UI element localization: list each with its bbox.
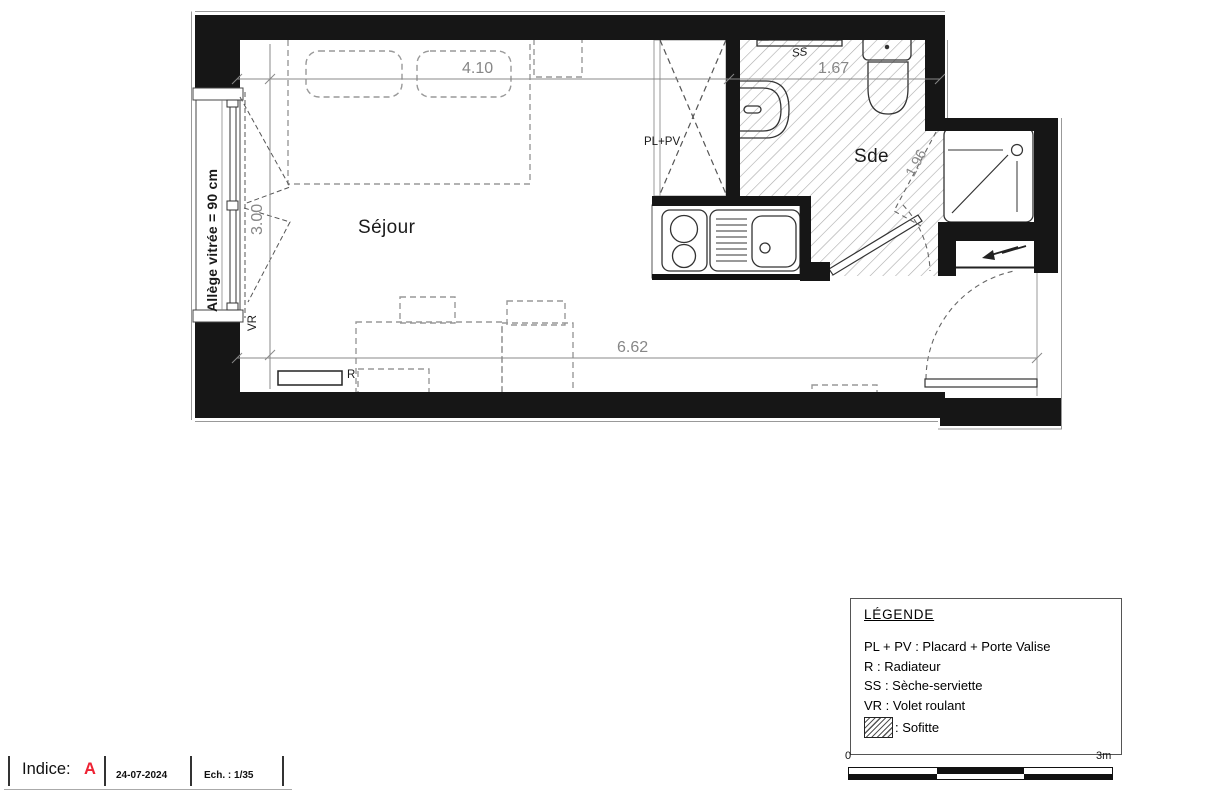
bed-outline	[288, 36, 530, 184]
sink-drain	[760, 243, 770, 253]
dim-height-left: 3.00	[249, 204, 267, 235]
plan-date: 24-07-2024	[116, 770, 167, 781]
wall-kitchen-top	[652, 196, 811, 206]
titleblock-separator	[104, 756, 106, 786]
titleblock-separator	[8, 756, 10, 786]
label-vr: VR	[247, 315, 259, 331]
window-sill-top	[193, 88, 243, 100]
indice-label: Indice:	[22, 760, 71, 779]
label-pl-pv: PL+PV	[644, 136, 680, 148]
wall-sde-right	[925, 40, 945, 131]
dim-width-total: 6.62	[617, 339, 648, 357]
legend-item-pl-pv: PL + PV : Placard + Porte Valise	[864, 637, 1121, 657]
chair-2	[507, 301, 565, 325]
scalebar-segment	[1024, 768, 1112, 779]
window-swing-dashed	[240, 97, 290, 302]
wall-top	[195, 15, 945, 40]
legend-box: LÉGENDE PL + PV : Placard + Porte Valise…	[850, 598, 1122, 755]
label-ss: SS	[791, 46, 808, 60]
entrance-arrow	[956, 246, 1035, 268]
wall-kitchen-stub	[800, 262, 830, 281]
table-extension	[502, 323, 573, 397]
legend-item-radiateur: R : Radiateur	[864, 657, 1121, 677]
burner-2	[673, 245, 696, 268]
scale-bar	[848, 767, 1113, 780]
scalebar-segment	[849, 768, 937, 779]
table-outline	[356, 322, 502, 397]
burner-1	[671, 216, 698, 243]
legend-item-sofitte: : Sofitte	[864, 717, 1121, 738]
floor-plan-page: 4.10 1.67 3.00 6.62 1.96 Séjour Sde PL+P…	[0, 0, 1221, 800]
scalebar-segment	[937, 768, 1025, 779]
chair-1	[400, 297, 455, 323]
pillow-left	[306, 51, 402, 97]
wall-closet-sde	[726, 40, 740, 196]
wall-below-shower	[938, 222, 1037, 241]
wall-bottom	[195, 392, 945, 418]
entrance-door-leaf	[925, 379, 1037, 387]
wall-entry-right	[1034, 240, 1058, 273]
wall-entry-left-stub	[938, 241, 956, 276]
nightstand-outline	[534, 35, 582, 77]
legend-item-volet-roulant: VR : Volet roulant	[864, 696, 1121, 716]
radiator	[278, 371, 342, 385]
hatch-swatch-icon	[864, 717, 893, 738]
scalebar-start-label: 0	[845, 750, 851, 762]
shower	[944, 128, 1033, 222]
scalebar-end-label: 3m	[1096, 750, 1111, 762]
room-label-sejour: Séjour	[358, 217, 415, 239]
wall-alcove-right	[1034, 118, 1058, 240]
wall-bottom-right	[940, 398, 1062, 426]
titleblock-separator	[282, 756, 284, 786]
dim-width-sejour: 4.10	[462, 60, 493, 78]
legend-title: LÉGENDE	[864, 607, 1121, 622]
room-label-sde: Sde	[854, 146, 889, 168]
closet-pl-pv	[654, 40, 726, 196]
dim-width-sde: 1.67	[818, 60, 849, 78]
titleblock-separator	[190, 756, 192, 786]
label-radiator: R	[347, 369, 355, 381]
entrance-door-swing	[926, 271, 1014, 379]
indice-value: A	[84, 760, 96, 779]
titleblock-underline	[4, 789, 292, 790]
label-allege-vitree: Allège vitrée = 90 cm	[204, 169, 220, 312]
legend-sofitte-label: : Sofitte	[895, 720, 939, 735]
sink-basin	[752, 216, 796, 267]
kitchenette	[652, 205, 800, 280]
plan-scale-text: Ech. : 1/35	[204, 770, 253, 781]
legend-item-seche-serviette: SS : Sèche-serviette	[864, 676, 1121, 696]
